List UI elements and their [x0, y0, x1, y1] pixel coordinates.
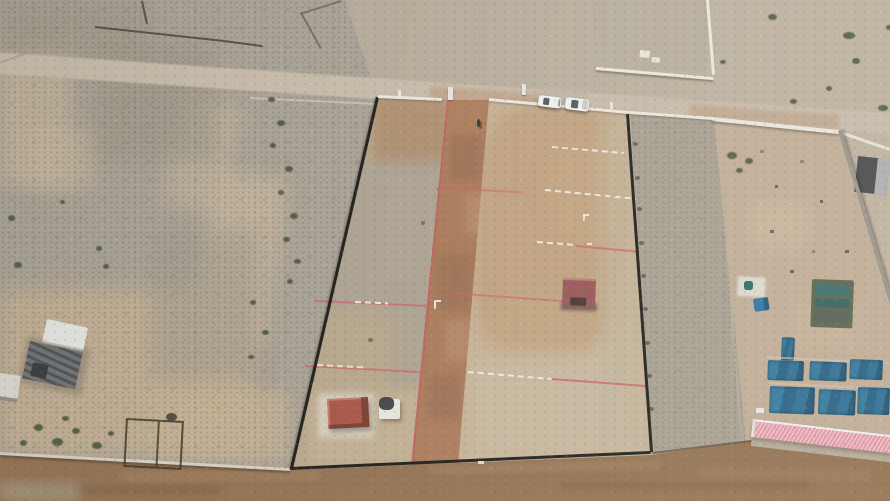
- maroon-roof-hut: [562, 278, 596, 306]
- fence-shadow-spot: [639, 241, 644, 245]
- person: [477, 119, 480, 127]
- shade-frame: [810, 279, 854, 328]
- shade-cover: [815, 298, 849, 308]
- foundation-outline: [123, 418, 183, 470]
- shrub: [736, 168, 743, 173]
- debris: [800, 160, 804, 163]
- shrub: [720, 60, 726, 64]
- blue-tarp: [767, 360, 804, 381]
- shrub: [283, 237, 290, 242]
- shed-dark-top: [379, 397, 394, 410]
- shrub: [96, 246, 102, 251]
- fence-shadow-spot: [633, 142, 638, 146]
- shrub: [103, 264, 109, 269]
- shrub: [108, 431, 114, 436]
- shrub: [294, 259, 301, 264]
- road-mottle: [438, 255, 472, 310]
- shrub: [20, 440, 27, 446]
- road-corner-light: [0, 482, 80, 501]
- shrub: [878, 105, 888, 111]
- shrub: [768, 14, 777, 20]
- debris: [760, 150, 764, 153]
- brown-graded-patch: [373, 97, 451, 167]
- red-roof-hut: [327, 397, 370, 429]
- blue-tarp: [849, 359, 883, 380]
- wall-post: [610, 102, 613, 109]
- shrub: [8, 215, 15, 221]
- road-streak: [700, 468, 870, 480]
- debris: [812, 250, 815, 253]
- fence-shadow-spot: [645, 341, 650, 345]
- survey-marker: [583, 214, 585, 221]
- shrub: [92, 442, 102, 449]
- road-streak-dark: [560, 482, 810, 490]
- shade-cover: [814, 310, 848, 323]
- shrub: [250, 300, 256, 305]
- shrub: [287, 279, 293, 284]
- shrub: [843, 32, 855, 39]
- shrub: [270, 143, 276, 148]
- gate-pillar: [448, 87, 453, 100]
- debris: [790, 270, 794, 273]
- gate-pillar: [522, 84, 526, 95]
- fence-shadow-spot: [643, 307, 648, 311]
- white-object: [756, 408, 764, 413]
- blue-tarp: [769, 386, 815, 415]
- debris: [368, 338, 373, 342]
- truck-cab: [30, 362, 49, 379]
- fence-shadow-spot: [635, 176, 640, 180]
- shrub: [72, 428, 80, 434]
- shrub: [285, 166, 293, 172]
- shrub: [826, 86, 832, 91]
- shrub: [277, 120, 285, 126]
- road-streak: [120, 470, 320, 481]
- foundation-inner-wall: [155, 422, 159, 467]
- car-hood: [582, 100, 589, 110]
- shrub: [268, 97, 275, 102]
- car-windshield: [571, 100, 579, 109]
- aerial-photo-scene: [0, 0, 890, 501]
- shrub: [60, 200, 65, 204]
- shrub: [34, 424, 43, 431]
- shade-cover: [815, 284, 849, 296]
- blue-tent: [753, 297, 770, 312]
- car-rear: [558, 99, 561, 106]
- hut-open-front: [570, 297, 586, 306]
- wall-post: [398, 90, 401, 97]
- shrub: [262, 330, 269, 335]
- road-mottle: [428, 375, 460, 420]
- survey-marker: [434, 300, 441, 302]
- shrub: [52, 438, 63, 446]
- shrub: [727, 152, 737, 159]
- fence-shadow-spot: [637, 207, 642, 211]
- shrub: [290, 213, 298, 219]
- blue-tarp: [857, 387, 890, 415]
- shrub: [886, 25, 890, 30]
- blue-tarp: [809, 361, 847, 382]
- sand-patch: [750, 200, 810, 250]
- debris: [820, 200, 823, 203]
- white-shed: [379, 399, 400, 419]
- roof-light-section: [874, 158, 890, 195]
- debris: [845, 250, 849, 253]
- fence-marker: [478, 461, 484, 464]
- shrub: [14, 262, 22, 268]
- blue-tarp: [818, 389, 856, 416]
- debris: [770, 230, 774, 233]
- shrub: [278, 190, 284, 195]
- stored-object: [652, 57, 660, 63]
- car-windshield: [543, 98, 550, 106]
- shrub: [852, 58, 860, 64]
- survey-marker: [587, 243, 592, 245]
- debris: [166, 413, 177, 421]
- debris: [775, 185, 778, 188]
- shrub: [745, 158, 753, 164]
- water-tank: [744, 281, 753, 290]
- debris: [421, 221, 425, 225]
- shrub: [790, 99, 797, 104]
- stored-object: [639, 50, 650, 58]
- shrub: [62, 416, 69, 421]
- road-mottle: [450, 135, 482, 180]
- shrub: [248, 355, 254, 359]
- fence-shadow-spot: [641, 274, 646, 278]
